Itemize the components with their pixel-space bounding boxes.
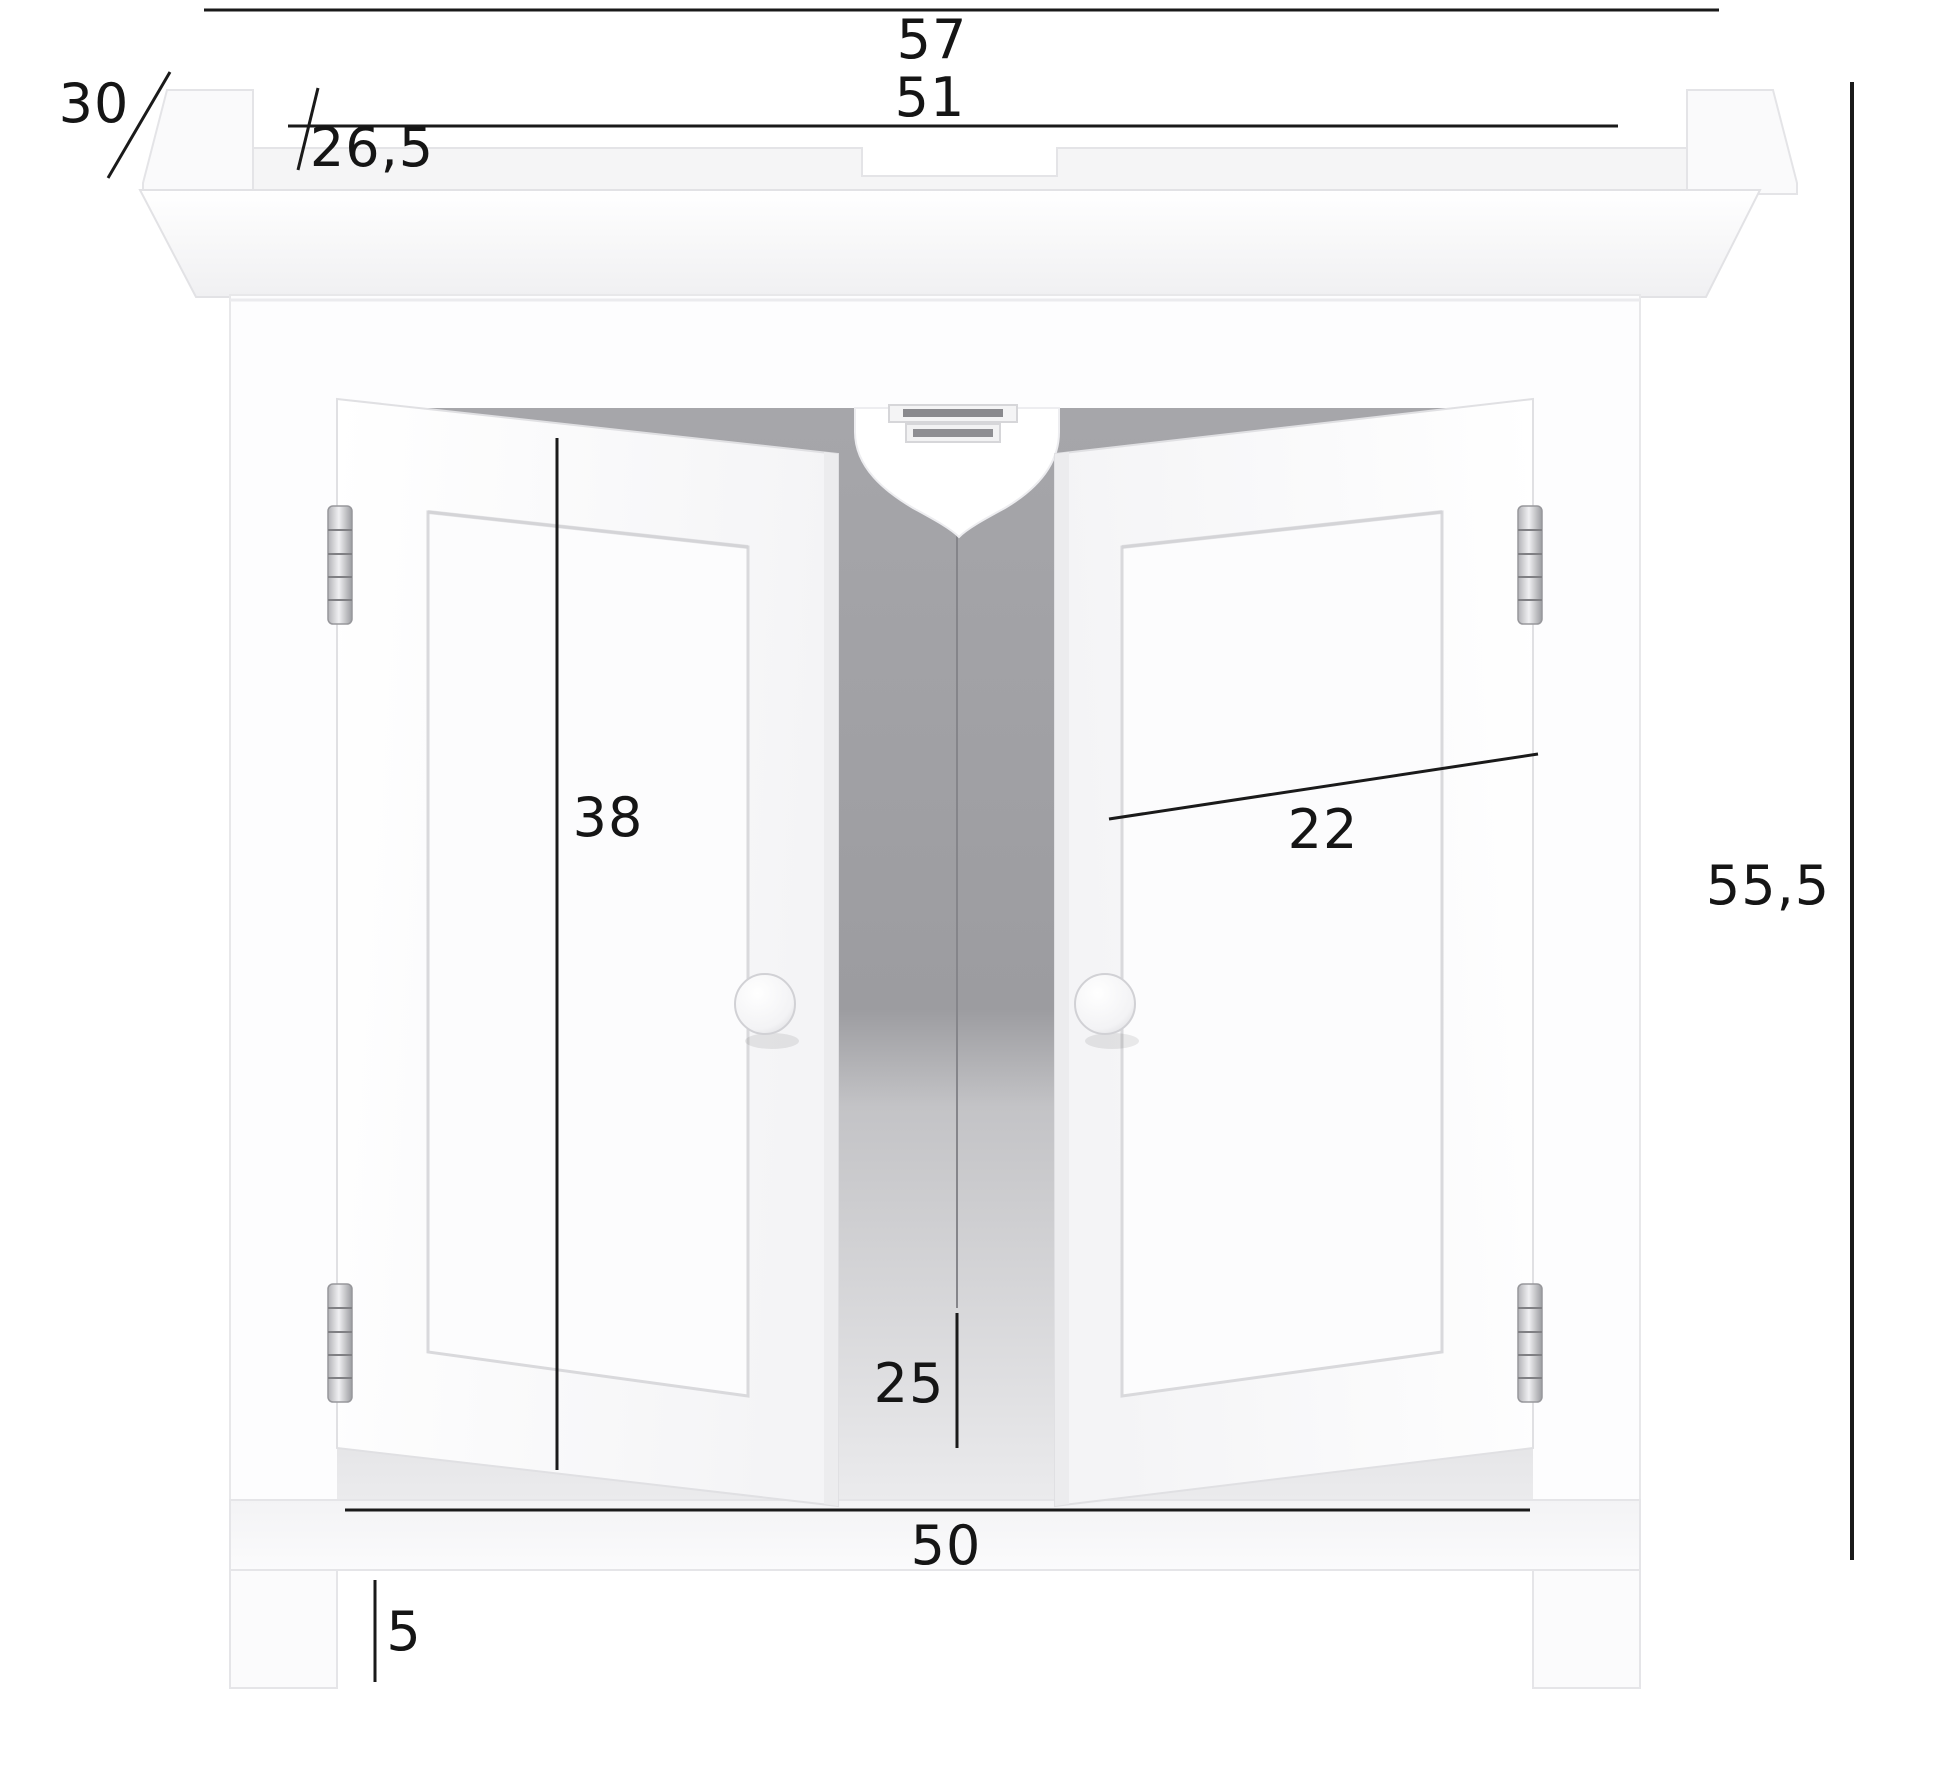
label-top-inner-width: 51: [895, 71, 966, 125]
right-door-top-hinge: [1518, 506, 1542, 624]
right-door-bottom-hinge: [1518, 1284, 1542, 1402]
label-top-width: 57: [897, 13, 968, 67]
left-leg: [230, 1570, 337, 1688]
label-leg-height: 5: [386, 1605, 421, 1659]
left-door-bottom-hinge: [328, 1284, 352, 1402]
right-leg: [1533, 1570, 1640, 1688]
label-height: 55,5: [1706, 859, 1830, 913]
left-door-panel: [428, 512, 748, 1396]
label-bottom-inner-width: 50: [911, 1519, 982, 1573]
top-left-corner-block: [143, 90, 253, 194]
label-top-recess: 26,5: [310, 121, 434, 175]
dimension-diagram: 57 51 26,5 30 55,5 22 38 25 50 5: [0, 0, 1940, 1785]
right-door: [1055, 399, 1533, 1506]
left-door-top-hinge: [328, 506, 352, 624]
label-depth: 30: [59, 77, 130, 131]
top-right-corner-block: [1687, 90, 1797, 194]
right-door-panel: [1122, 512, 1442, 1396]
left-door: [337, 399, 838, 1506]
label-siphon-gap-height: 25: [874, 1357, 945, 1411]
countertop-slab: [140, 190, 1760, 297]
label-door-height: 38: [573, 791, 644, 845]
drain-pipe-bracket: [889, 405, 1017, 442]
label-door-width: 22: [1288, 803, 1359, 857]
top-back-rail: [253, 148, 1687, 194]
